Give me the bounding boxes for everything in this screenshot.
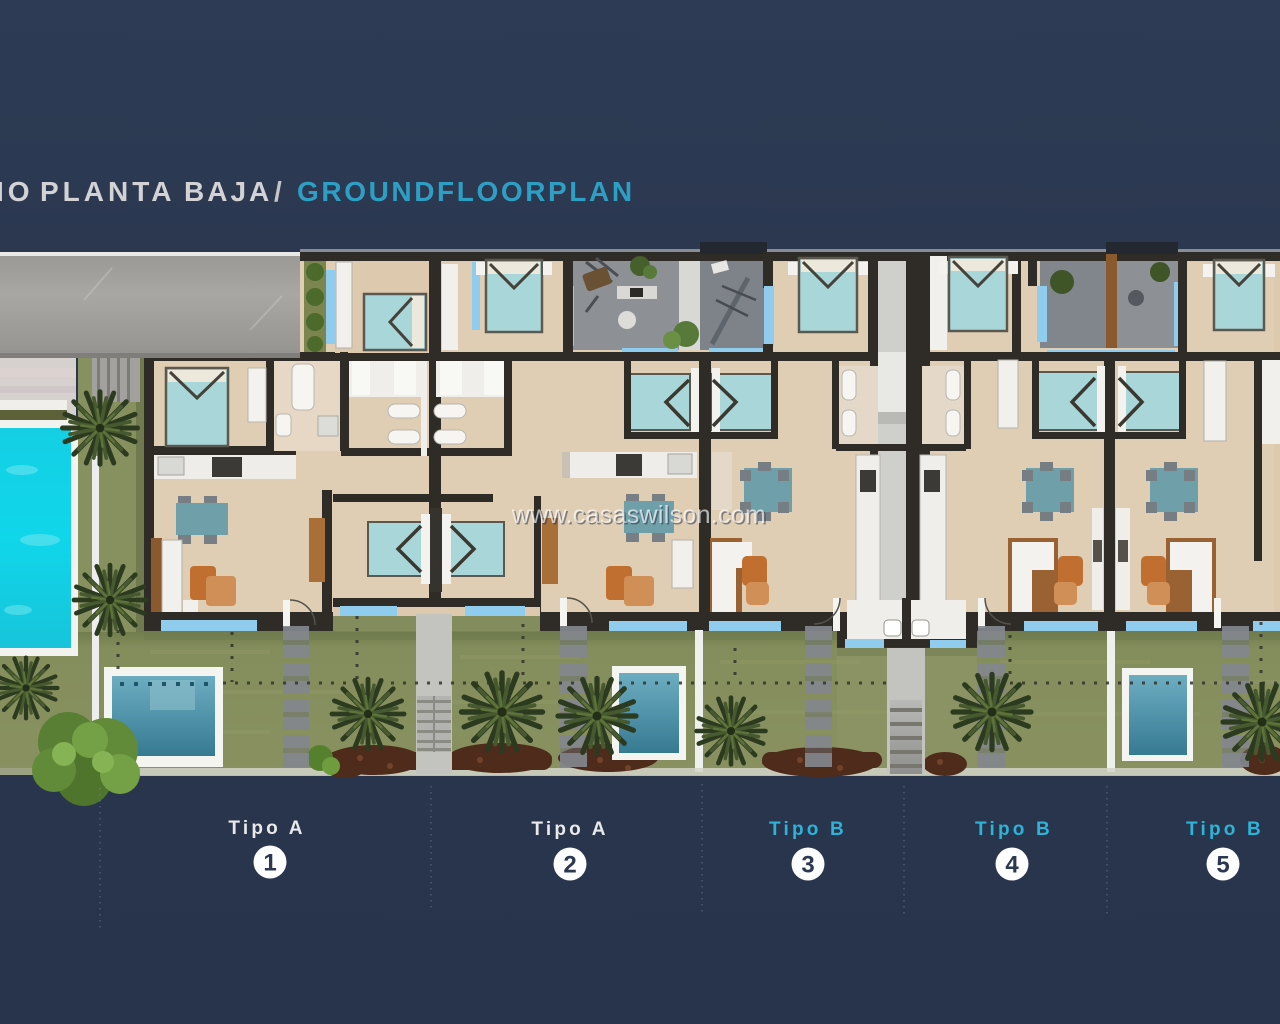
svg-text:Tipo B: Tipo B bbox=[975, 819, 1053, 840]
svg-text:www.casaswilson.com: www.casaswilson.com bbox=[511, 501, 766, 529]
svg-text:GROUNDFLOORPLAN: GROUNDFLOORPLAN bbox=[297, 176, 635, 207]
svg-text:BAJA: BAJA bbox=[184, 176, 272, 207]
svg-text:2: 2 bbox=[563, 852, 576, 879]
svg-text:4: 4 bbox=[1005, 852, 1019, 879]
svg-text:Tipo A: Tipo A bbox=[228, 818, 305, 839]
svg-text:Tipo B: Tipo B bbox=[769, 819, 847, 840]
svg-text:PLANTA: PLANTA bbox=[40, 176, 175, 207]
svg-text:3: 3 bbox=[801, 852, 814, 879]
svg-text:IO: IO bbox=[0, 176, 34, 207]
svg-text:5: 5 bbox=[1216, 852, 1229, 879]
svg-text:Tipo B: Tipo B bbox=[1186, 819, 1264, 840]
svg-text:1: 1 bbox=[263, 850, 276, 877]
svg-text:Tipo A: Tipo A bbox=[531, 819, 608, 840]
svg-text:/: / bbox=[274, 176, 282, 207]
